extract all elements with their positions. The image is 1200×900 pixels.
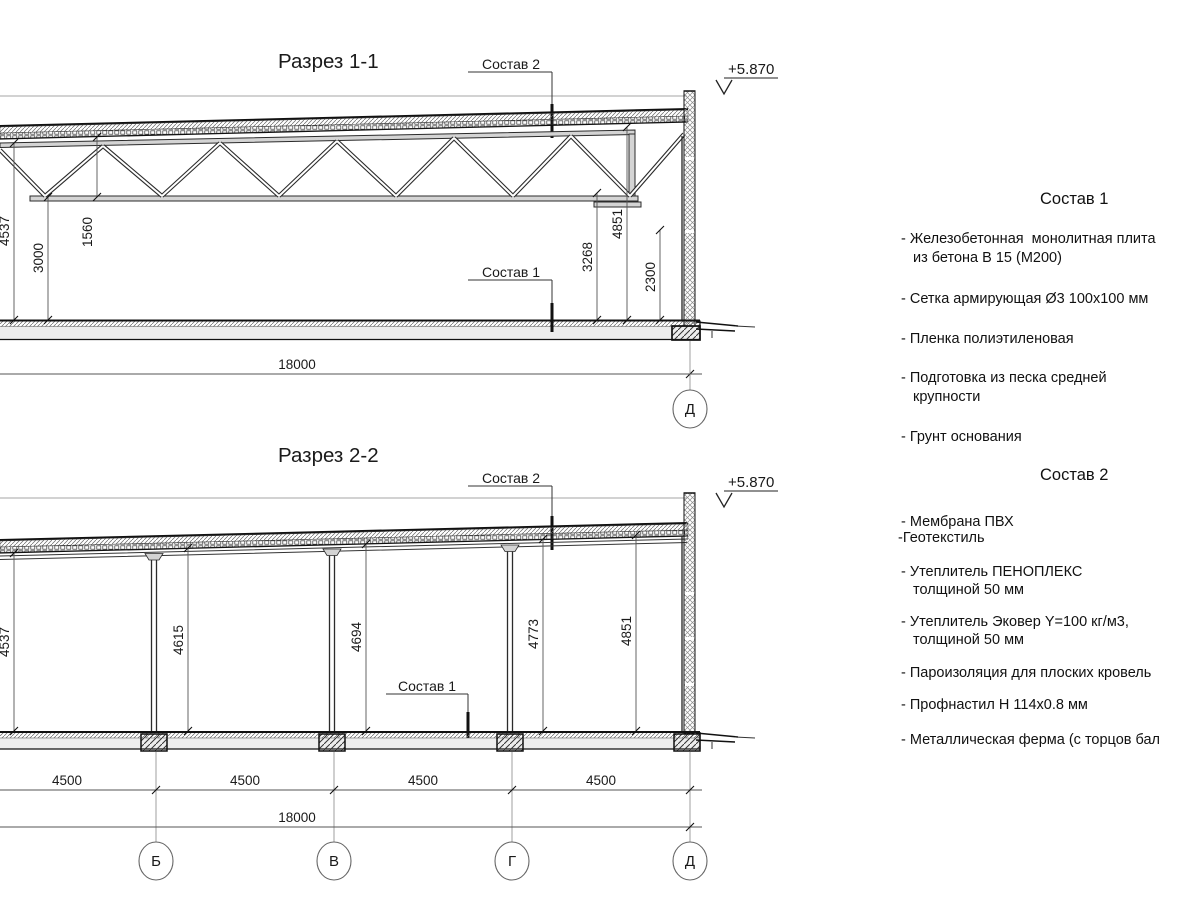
dim-4500-2: 4500: [230, 773, 260, 788]
dimensions-vertical: 4537 4615 4694 4773 4851: [0, 531, 640, 735]
section-2-2-title: Разрез 2-2: [278, 444, 379, 467]
column-g: [508, 552, 513, 733]
legend2-item: - Мембрана ПВХ: [901, 514, 1014, 531]
end-wall: [682, 493, 696, 733]
elevation-value: +5.870: [728, 61, 774, 78]
elevation-arrow-icon: [716, 493, 732, 507]
dim-lines: [14, 535, 636, 731]
truss-bottom-chord: [30, 196, 638, 201]
flashing: [696, 733, 738, 742]
legend1-item: - Железобетонная монолитная плита: [901, 231, 1156, 248]
wall-panel-joint: [685, 683, 694, 686]
dim-ticks: [10, 531, 640, 735]
column-capital: [501, 545, 519, 552]
dim-4851: 4851: [610, 209, 625, 239]
span-dimension: 18000 Д: [0, 341, 707, 428]
truss-bearing-plate: [594, 202, 641, 207]
dim-4500-1: 4500: [52, 773, 82, 788]
column-b: [152, 560, 157, 732]
elevation-value: +5.870: [728, 474, 774, 491]
wall-panel-joint: [685, 637, 694, 640]
section-1-1-title: Разрез 1-1: [278, 50, 379, 73]
wall-panel-joint: [685, 157, 694, 160]
callout-sostav2-label: Состав 2: [482, 56, 540, 72]
dim-3268: 3268: [580, 242, 595, 272]
wall-panel-joint: [685, 230, 694, 233]
callout-leader: [468, 72, 552, 106]
callout-leader: [468, 280, 552, 305]
dim-4537: 4537: [0, 627, 12, 657]
flashing: [696, 322, 738, 331]
dim-3000: 3000: [31, 243, 46, 273]
floor-slab: [0, 732, 755, 751]
foundation-block: [672, 326, 700, 340]
dim-4851: 4851: [619, 616, 634, 646]
wall-sandwich-panel: [684, 493, 695, 733]
callout-sostav1-label: Состав 1: [482, 264, 540, 280]
grid-letter-d: Д: [685, 853, 695, 870]
dim-18000: 18000: [278, 810, 316, 825]
wall-sandwich-panel: [684, 91, 695, 327]
callout-leader: [468, 486, 552, 518]
legend2-item: - Профнастил Н 114х0.8 мм: [901, 697, 1088, 714]
legend1-item: - Пленка полиэтиленовая: [901, 331, 1074, 348]
elevation-mark: +5.870: [716, 474, 778, 507]
grid-lines: [156, 752, 690, 842]
dim-2300: 2300: [643, 262, 658, 292]
slab-body: [0, 738, 700, 749]
dim-1560: 1560: [80, 217, 95, 247]
elevation-arrow-icon: [716, 80, 732, 94]
legend2-item: - Утеплитель Эковер Y=100 кг/м3,: [901, 614, 1129, 631]
legend1-item: - Грунт основания: [901, 429, 1022, 446]
dimensions-vertical: 4537 3000 1560 3268 4851 2300: [0, 123, 664, 324]
legend2-item-cont: толщиной 50 мм: [913, 582, 1024, 599]
end-wall: [682, 91, 696, 327]
legend1-item: - Подготовка из песка средней: [901, 370, 1107, 387]
dim-4500-3: 4500: [408, 773, 438, 788]
legend2-item: -Геотекстиль: [898, 530, 985, 547]
grid-letter-v: В: [329, 853, 339, 870]
column-capital: [145, 554, 163, 561]
dim-chain-lines: [0, 790, 702, 827]
dim-ticks: [10, 123, 664, 324]
legend1-item-cont: из бетона В 15 (М200): [913, 250, 1062, 267]
section-1-1: Разрез 1-1 +5.870 Состав 2: [0, 50, 778, 428]
floor-slab: [0, 321, 755, 341]
roof-assembly: [0, 523, 688, 560]
callout-sostav1-label: Состав 1: [398, 678, 456, 694]
slab-screed-band: [0, 733, 700, 738]
truss-end-post: [629, 134, 635, 196]
flashing-edge: [712, 326, 755, 338]
dim-chain-ticks: [152, 786, 694, 831]
sections-drawing: Разрез 1-1 +5.870 Состав 2: [0, 0, 1200, 900]
legend2-heading: Состав 2: [1040, 466, 1108, 485]
dim-4694: 4694: [349, 621, 364, 652]
dim-18000: 18000: [278, 357, 316, 372]
slab-body: [0, 327, 700, 340]
callout-leader: [386, 694, 468, 714]
footing: [141, 734, 167, 751]
dim-4773: 4773: [526, 619, 541, 649]
grid-letter-b: Б: [151, 853, 161, 870]
legend2-item: - Пароизоляция для плоских кровель: [901, 665, 1151, 682]
legend2-item-cont: толщиной 50 мм: [913, 632, 1024, 649]
footing: [674, 734, 700, 751]
columns: [145, 545, 519, 732]
legend2-item: - Утеплитель ПЕНОПЛЕКС: [901, 564, 1082, 581]
grid-letter-g: Г: [508, 853, 516, 870]
legend2-item: - Металлическая ферма (с торцов бал: [901, 732, 1160, 749]
dim-4615: 4615: [171, 625, 186, 655]
dim-lines: [14, 127, 660, 320]
column-v: [330, 556, 335, 733]
flashing-edge: [712, 737, 755, 749]
dim-4500-4: 4500: [586, 773, 616, 788]
dimension-chains: 4500 4500 4500 4500 18000 Б В Г Д: [0, 752, 707, 880]
roof-truss: [0, 130, 684, 207]
legend1-item-cont: крупности: [913, 389, 980, 406]
grid-letter-d: Д: [685, 401, 695, 418]
footing: [497, 734, 523, 751]
legend1-heading: Состав 1: [1040, 190, 1108, 209]
dim-4537: 4537: [0, 216, 12, 246]
section-2-2: Разрез 2-2 +5.870 Состав 2: [0, 444, 778, 880]
footing: [319, 734, 345, 751]
drawing-sheet: Разрез 1-1 +5.870 Состав 2: [0, 0, 1200, 900]
legend1-item: - Сетка армирующая Ø3 100х100 мм: [901, 291, 1148, 308]
wall-panel-joint: [685, 592, 694, 595]
column-capital: [323, 549, 341, 556]
callout-sostav2-label: Состав 2: [482, 470, 540, 486]
elevation-mark: +5.870: [716, 61, 778, 94]
